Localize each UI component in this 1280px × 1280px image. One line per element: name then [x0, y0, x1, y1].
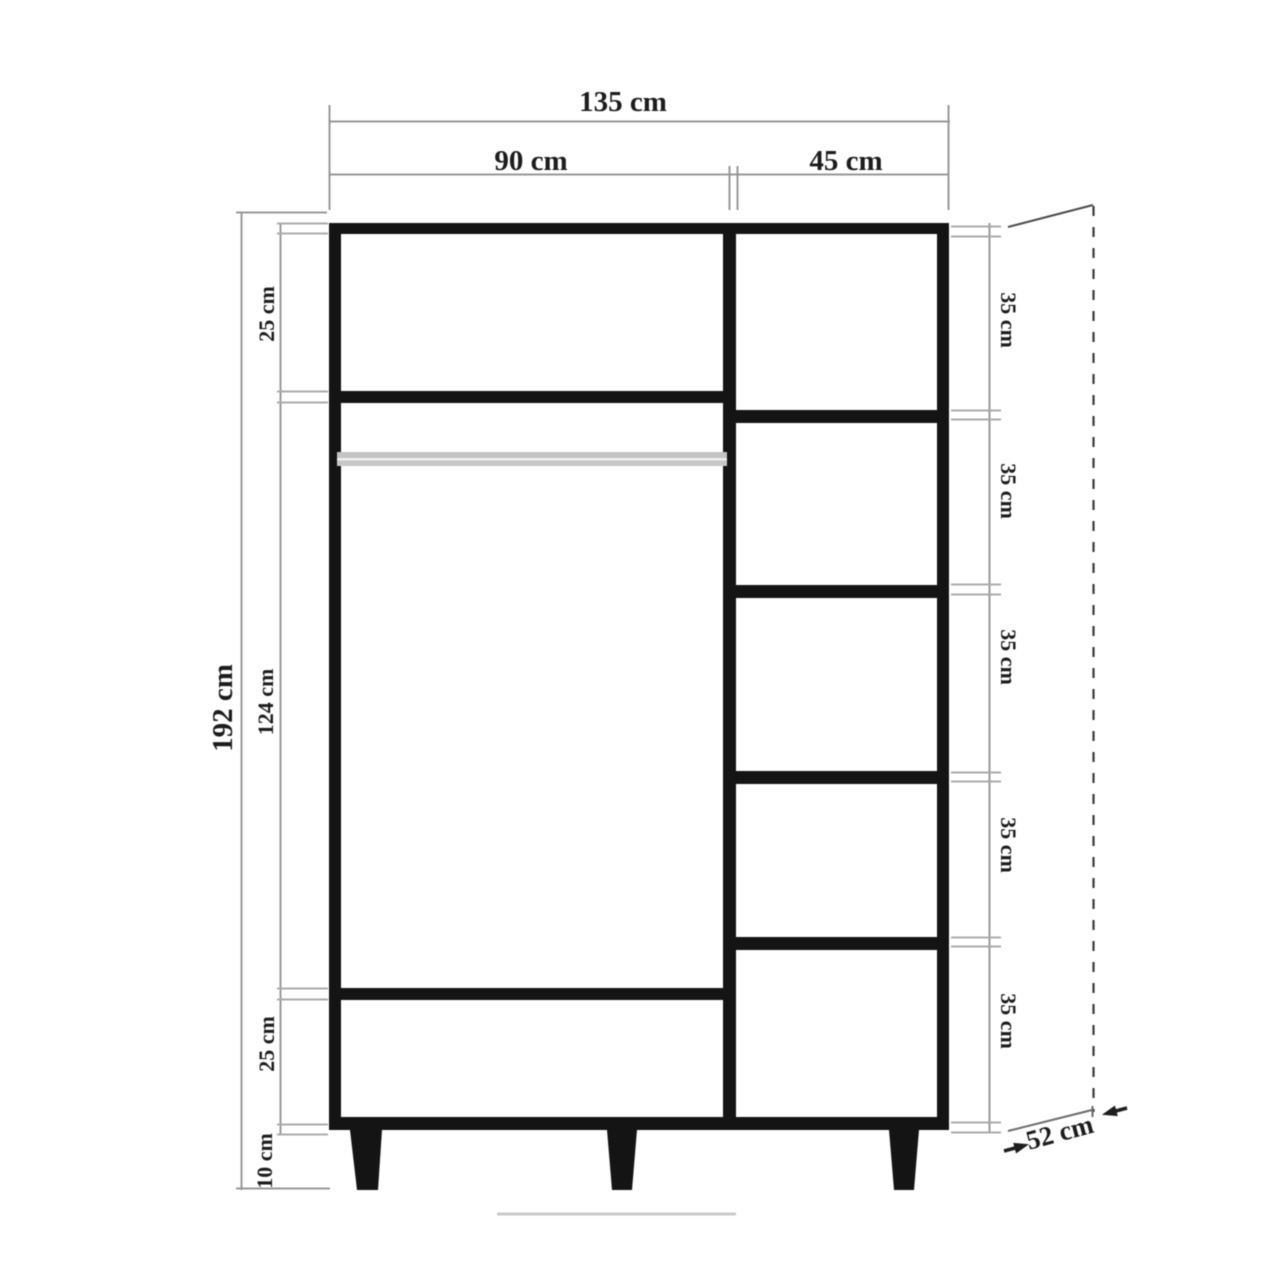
svg-text:35 cm: 35 cm	[996, 817, 1021, 873]
svg-text:52 cm: 52 cm	[1023, 1109, 1097, 1156]
svg-text:25 cm: 25 cm	[254, 1016, 279, 1072]
svg-text:35 cm: 35 cm	[996, 463, 1021, 519]
svg-text:45 cm: 45 cm	[809, 145, 882, 177]
svg-text:25 cm: 25 cm	[254, 286, 279, 342]
svg-text:192 cm: 192 cm	[207, 664, 239, 752]
svg-text:10 cm: 10 cm	[252, 1133, 277, 1189]
svg-text:124 cm: 124 cm	[253, 669, 278, 736]
svg-text:35 cm: 35 cm	[996, 629, 1021, 685]
svg-text:35 cm: 35 cm	[996, 993, 1021, 1049]
svg-text:35 cm: 35 cm	[996, 292, 1021, 348]
svg-text:90 cm: 90 cm	[494, 145, 567, 177]
svg-text:135 cm: 135 cm	[579, 86, 667, 118]
